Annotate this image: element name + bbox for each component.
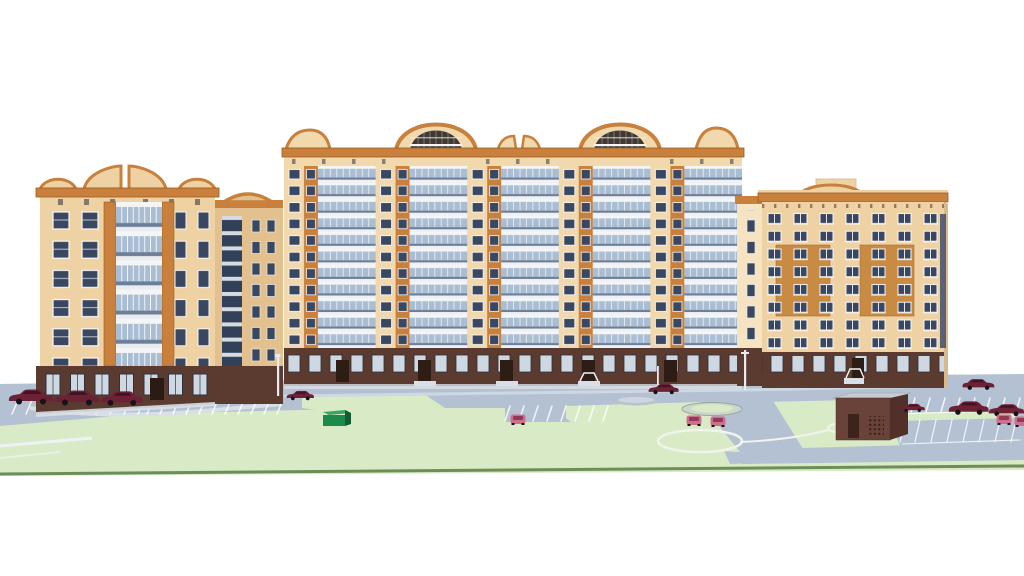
left-tower-balcony-stack: [116, 202, 162, 366]
left-tower-arch-left: [84, 166, 121, 189]
central-arch-crown-left: [396, 125, 476, 151]
building-right-slab: [758, 179, 948, 388]
building-central-slab: [282, 125, 744, 390]
wing-arch-parapet: [224, 194, 272, 202]
right-slab-windows: [762, 210, 944, 352]
central-floor-grid: [284, 166, 742, 348]
right-slab-side-balconies: [940, 214, 946, 348]
scene-canvas: [0, 0, 1024, 576]
green-dumpster: [323, 410, 351, 426]
left-tower-pilaster-right: [162, 202, 174, 366]
central-mid-peak-right: [522, 136, 540, 149]
wing-windows: [248, 216, 278, 392]
right-slab-cornice: [758, 193, 948, 202]
central-arch-crown-right: [580, 125, 660, 151]
entrance-mound: [614, 397, 658, 406]
central-end-curve-left: [286, 130, 330, 149]
architectural-render: Residential complex — 3D architectural r…: [0, 0, 1024, 576]
building-left-tower: [36, 166, 219, 417]
pink-car-5: [1015, 417, 1024, 428]
left-tower-shoulder-left: [40, 179, 76, 189]
connector-windows: [741, 210, 759, 350]
right-slab-dentils: [762, 204, 944, 208]
central-cornice: [282, 148, 744, 157]
central-end-curve-right: [696, 128, 738, 149]
left-tower-cornice: [36, 188, 219, 197]
left-tower-arch-right: [129, 166, 166, 189]
substation-door: [848, 414, 859, 438]
connector-base: [737, 348, 763, 386]
left-tower-shoulder-right: [179, 179, 215, 189]
substation-side: [890, 394, 908, 440]
left-tower-windows-right: [170, 206, 215, 366]
substation-hut: [833, 393, 911, 440]
wing-base: [213, 366, 283, 404]
pink-car-3: [711, 417, 726, 428]
pink-car-1: [511, 415, 526, 426]
left-tower-entrance-door: [150, 378, 164, 400]
building-stair-connector: [735, 196, 765, 386]
right-slab-parapet-lip: [758, 190, 948, 193]
central-mid-peak-left: [498, 136, 516, 149]
left-tower-windows-left: [48, 206, 106, 366]
building-courtyard-wing: [213, 194, 283, 404]
substation-vent-grid: [868, 416, 884, 436]
pink-car-4: [997, 415, 1012, 426]
pink-car-2: [687, 416, 702, 427]
left-tower-pilaster-left: [104, 202, 116, 366]
round-planter: [682, 403, 742, 416]
